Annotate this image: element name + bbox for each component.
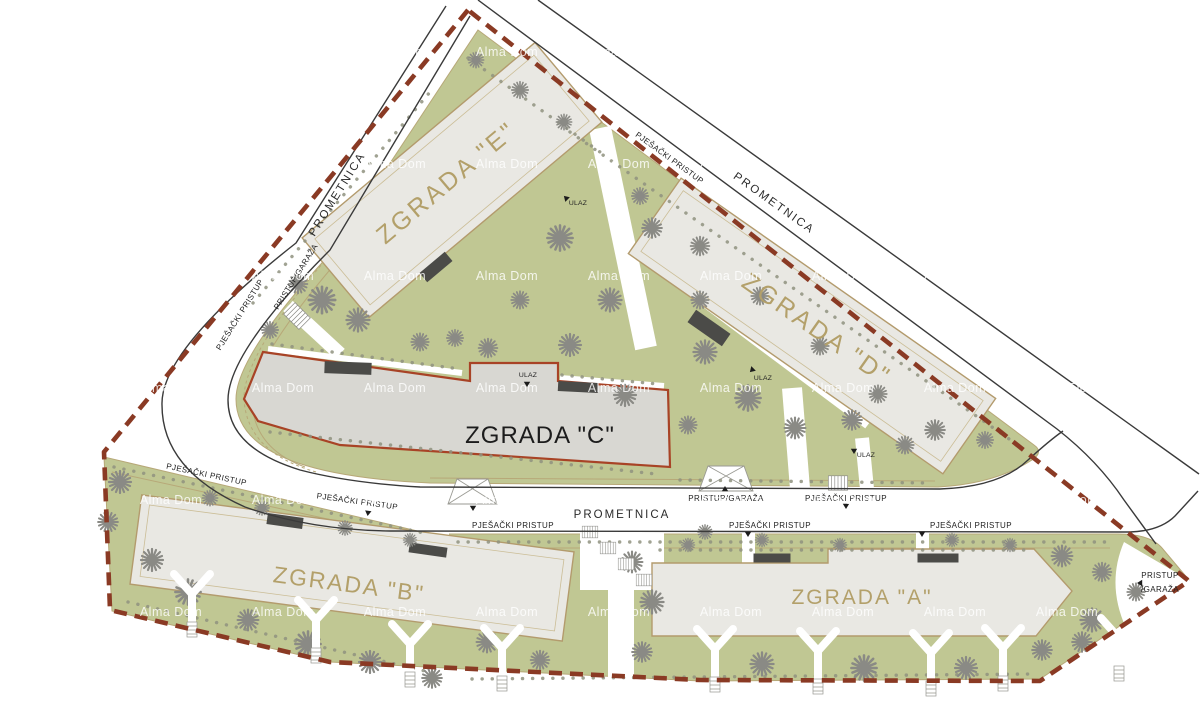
tree-icon bbox=[531, 651, 550, 670]
tree-icon bbox=[547, 225, 572, 250]
building-label-c: ZGRADA "C" bbox=[465, 422, 615, 449]
watermark: Alma Dom bbox=[924, 493, 986, 507]
watermark: Alma Dom bbox=[812, 381, 874, 395]
tree-icon bbox=[679, 416, 697, 434]
tree-icon bbox=[833, 538, 846, 551]
watermark: Alma Dom bbox=[812, 45, 874, 59]
tree-icon bbox=[109, 471, 131, 493]
tree-icon bbox=[755, 533, 768, 546]
watermark: Alma Dom bbox=[252, 493, 314, 507]
site-plan-page: ZGRADA "E" ZGRADA "D" ZGRADA "C" ZGRADA … bbox=[0, 0, 1200, 707]
watermark: Alma Dom bbox=[140, 269, 202, 283]
tree-icon bbox=[632, 642, 652, 662]
tree-icon bbox=[598, 288, 621, 311]
watermark: Alma Dom bbox=[364, 381, 426, 395]
tree-icon bbox=[511, 291, 529, 309]
watermark: Alma Dom bbox=[252, 157, 314, 171]
entrance-label: ULAZ bbox=[857, 452, 875, 459]
watermark: Alma Dom bbox=[140, 157, 202, 171]
watermark: Alma Dom bbox=[812, 269, 874, 283]
watermark: Alma Dom bbox=[252, 381, 314, 395]
entrance-label: ULAZ bbox=[569, 200, 587, 207]
entrance-label: ULAZ bbox=[519, 372, 537, 379]
watermark: Alma Dom bbox=[1036, 157, 1098, 171]
tree-icon bbox=[750, 652, 773, 675]
site-plan-drawing: ZGRADA "E" ZGRADA "D" ZGRADA "C" ZGRADA … bbox=[0, 0, 1200, 707]
tree-icon bbox=[1093, 563, 1112, 582]
watermark: Alma Dom bbox=[140, 381, 202, 395]
stairs-icon bbox=[618, 558, 634, 570]
tree-icon bbox=[202, 490, 217, 505]
tree-icon bbox=[1032, 640, 1052, 660]
tree-icon bbox=[512, 82, 529, 99]
watermark: Alma Dom bbox=[476, 45, 538, 59]
tree-icon bbox=[851, 655, 876, 680]
watermark: Alma Dom bbox=[252, 605, 314, 619]
watermark: Alma Dom bbox=[924, 45, 986, 59]
watermark: Alma Dom bbox=[476, 381, 538, 395]
stairs-icon bbox=[600, 542, 616, 554]
tree-icon bbox=[403, 533, 416, 546]
watermark: Alma Dom bbox=[476, 157, 538, 171]
watermark: Alma Dom bbox=[700, 493, 762, 507]
watermark: Alma Dom bbox=[1036, 605, 1098, 619]
pedestrian-access-label: PJEŠAČKI PRISTUP bbox=[472, 521, 554, 530]
watermark: Alma Dom bbox=[812, 157, 874, 171]
tree-icon bbox=[309, 287, 335, 313]
watermark: Alma Dom bbox=[140, 493, 202, 507]
tree-icon bbox=[632, 188, 649, 205]
watermark: Alma Dom bbox=[364, 493, 426, 507]
tree-icon bbox=[691, 291, 709, 309]
watermark: Alma Dom bbox=[252, 45, 314, 59]
watermark: Alma Dom bbox=[476, 605, 538, 619]
watermark: Alma Dom bbox=[588, 605, 650, 619]
tree-icon bbox=[925, 420, 945, 440]
tree-icon bbox=[691, 237, 710, 256]
tree-icon bbox=[693, 340, 716, 363]
tree-icon bbox=[1003, 538, 1016, 551]
tree-icon bbox=[945, 533, 958, 546]
watermark: Alma Dom bbox=[924, 269, 986, 283]
stairs-icon bbox=[582, 526, 598, 538]
watermark: Alma Dom bbox=[588, 45, 650, 59]
watermark: Alma Dom bbox=[1036, 493, 1098, 507]
watermark: Alma Dom bbox=[924, 381, 986, 395]
watermark: Alma Dom bbox=[140, 45, 202, 59]
watermark: Alma Dom bbox=[812, 493, 874, 507]
watermark: Alma Dom bbox=[700, 157, 762, 171]
y-path bbox=[1101, 618, 1137, 681]
tree-icon bbox=[896, 436, 914, 454]
tree-icon bbox=[977, 432, 994, 449]
canopy-bar bbox=[754, 554, 791, 563]
tree-icon bbox=[642, 218, 662, 238]
watermark: Alma Dom bbox=[700, 45, 762, 59]
tree-icon bbox=[346, 308, 369, 331]
garage-access-corner-line1: PRISTUP bbox=[1141, 571, 1178, 580]
tree-icon bbox=[141, 549, 163, 571]
watermark: Alma Dom bbox=[924, 157, 986, 171]
tree-icon bbox=[1052, 546, 1073, 567]
tree-icon bbox=[842, 410, 862, 430]
watermark: Alma Dom bbox=[252, 269, 314, 283]
watermark: Alma Dom bbox=[700, 605, 762, 619]
canopy-bar bbox=[918, 554, 959, 563]
tree-icon bbox=[556, 114, 571, 129]
watermark: Alma Dom bbox=[812, 605, 874, 619]
pedestrian-access-label: PJEŠAČKI PRISTUP bbox=[930, 521, 1012, 530]
garage-access-corner-line2: /GARAŽA bbox=[1141, 585, 1179, 594]
tree-icon bbox=[681, 538, 694, 551]
watermark: Alma Dom bbox=[588, 493, 650, 507]
watermark: Alma Dom bbox=[1036, 45, 1098, 59]
watermark: Alma Dom bbox=[476, 493, 538, 507]
road-label-bottom: PROMETNICA bbox=[574, 509, 671, 521]
watermark: Alma Dom bbox=[140, 605, 202, 619]
watermark: Alma Dom bbox=[364, 269, 426, 283]
tree-icon bbox=[422, 668, 442, 688]
canopy-bar bbox=[324, 361, 371, 375]
watermark: Alma Dom bbox=[588, 157, 650, 171]
tree-icon bbox=[559, 334, 581, 356]
watermark: Alma Dom bbox=[364, 157, 426, 171]
watermark: Alma Dom bbox=[476, 269, 538, 283]
pedestrian-access-label: PJEŠAČKI PRISTUP bbox=[729, 521, 811, 530]
watermark: Alma Dom bbox=[364, 45, 426, 59]
watermark: Alma Dom bbox=[1036, 269, 1098, 283]
watermark: Alma Dom bbox=[588, 381, 650, 395]
tree-icon bbox=[447, 330, 464, 347]
tree-icon bbox=[411, 333, 429, 351]
watermark: Alma Dom bbox=[924, 605, 986, 619]
stairs-icon bbox=[636, 574, 652, 586]
tree-icon bbox=[479, 339, 498, 358]
watermark: Alma Dom bbox=[364, 605, 426, 619]
watermark: Alma Dom bbox=[588, 269, 650, 283]
watermark: Alma Dom bbox=[700, 269, 762, 283]
watermark: Alma Dom bbox=[700, 381, 762, 395]
tree-icon bbox=[955, 657, 977, 679]
watermark: Alma Dom bbox=[1036, 381, 1098, 395]
tree-icon bbox=[785, 418, 806, 439]
